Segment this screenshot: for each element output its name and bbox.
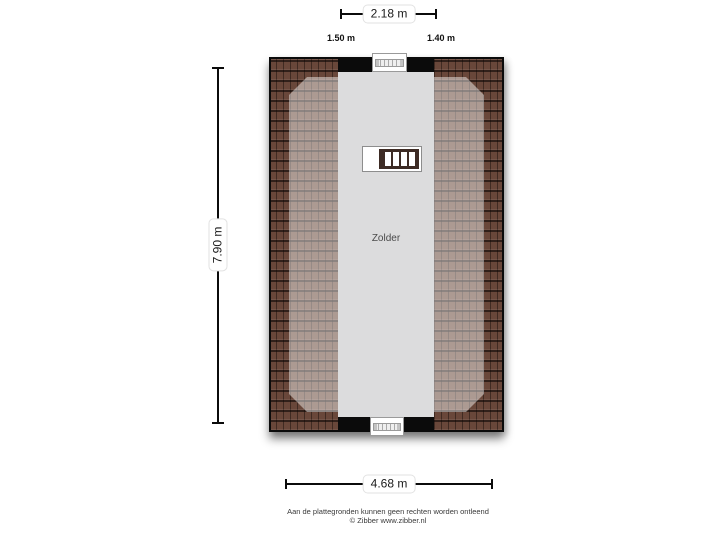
dimension-label-left: 7.90 m (209, 219, 228, 272)
window-icon (372, 53, 407, 72)
room-label: Zolder (338, 233, 434, 244)
dimension-label-roof-left: 1.50 m (327, 33, 355, 43)
roof-area-right (434, 57, 504, 432)
stairs-icon (379, 149, 419, 169)
roof-area-left (269, 57, 338, 432)
footer: Aan de plattegronden kunnen geen rechten… (218, 507, 558, 525)
dimension-tick (212, 67, 224, 69)
dimension-tick (435, 9, 437, 19)
dimension-label-top: 2.18 m (363, 5, 416, 24)
disclaimer-text: Aan de plattegronden kunnen geen rechten… (218, 507, 558, 516)
page-background: 2.18 m 1.50 m 1.40 m 7.90 m Zolder (0, 0, 720, 540)
dimension-label-bottom: 4.68 m (363, 475, 416, 494)
roof-low-headroom-overlay (269, 57, 338, 432)
floor-plan: Zolder (269, 57, 504, 432)
roof-low-headroom-overlay (434, 57, 504, 432)
dimension-tick (212, 422, 224, 424)
dimension-tick (340, 9, 342, 19)
copyright-text: © Zibber www.zibber.nl (218, 516, 558, 525)
dimension-label-roof-right: 1.40 m (427, 33, 455, 43)
window-glass (373, 423, 401, 431)
dimension-tick (285, 479, 287, 489)
stairwell-opening (362, 146, 422, 172)
attic-floor (338, 57, 434, 432)
window-glass (375, 59, 404, 67)
dimension-tick (491, 479, 493, 489)
window-icon (370, 417, 404, 436)
